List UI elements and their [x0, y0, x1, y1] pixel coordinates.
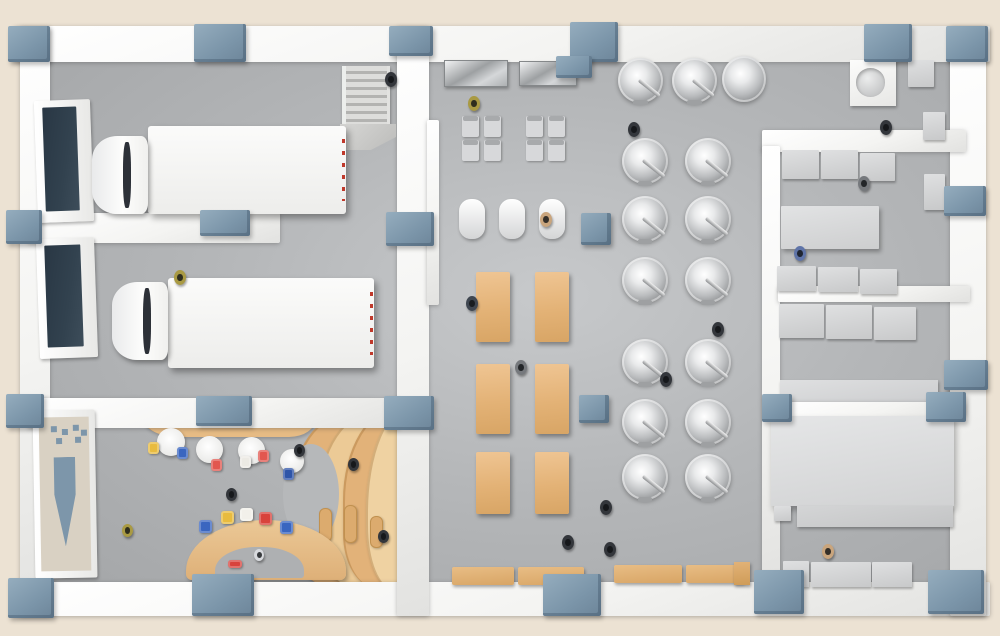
person — [468, 96, 480, 111]
fermentation-tank — [622, 399, 668, 445]
fermentation-tank — [685, 339, 731, 385]
person — [122, 524, 133, 537]
classroom-chair — [462, 116, 479, 137]
storage-bench — [872, 562, 912, 587]
storage-box — [923, 112, 945, 140]
person — [294, 444, 305, 457]
kids-chair — [240, 456, 251, 468]
standing-table — [499, 199, 525, 239]
person — [604, 542, 616, 557]
brew-tank — [618, 58, 663, 103]
classroom-chair — [548, 140, 565, 161]
brew-tank — [672, 58, 717, 103]
column-bracket — [754, 570, 804, 614]
classroom-chair — [462, 140, 479, 161]
column-bracket — [944, 186, 986, 216]
fermentation-tank — [685, 138, 731, 184]
kitchen-counter — [780, 380, 938, 404]
truck-cab — [112, 282, 168, 360]
wood-table — [476, 364, 510, 434]
person — [858, 176, 870, 191]
person — [348, 458, 359, 471]
column-block — [581, 213, 611, 245]
play-mat — [228, 560, 242, 568]
kids-chair — [148, 442, 159, 454]
wall-cabinet — [924, 174, 945, 210]
person — [174, 270, 186, 285]
storage-box — [908, 60, 934, 87]
person — [254, 549, 264, 561]
lab-cabinet — [821, 150, 858, 179]
column-bracket — [762, 394, 792, 422]
truck-cab — [92, 136, 148, 214]
column-bracket — [194, 24, 246, 62]
person — [628, 122, 640, 137]
person — [378, 530, 389, 543]
wall-center — [397, 26, 429, 616]
column-bracket — [928, 570, 984, 614]
storage-bench — [811, 562, 871, 587]
kids-chair — [283, 468, 294, 480]
person — [794, 246, 806, 261]
classroom-chair — [484, 140, 501, 161]
column-bracket — [389, 26, 433, 56]
lab-cabinet — [777, 266, 816, 291]
fermentation-tank — [685, 454, 731, 500]
column-bracket — [200, 210, 250, 236]
column-bracket — [946, 26, 988, 62]
wall-top — [14, 26, 990, 62]
person — [712, 322, 724, 337]
column-bracket — [8, 26, 50, 62]
cold-room-step — [774, 506, 791, 521]
kids-chair — [211, 459, 222, 471]
wall-right — [950, 26, 986, 616]
column-bracket — [6, 394, 44, 428]
truck-trailer — [168, 278, 374, 368]
person — [600, 500, 612, 515]
classroom-chair — [526, 116, 543, 137]
lab-cabinet — [860, 269, 897, 294]
fermentation-tank — [622, 138, 668, 184]
arch-stool — [240, 508, 253, 521]
steel-counter — [444, 60, 508, 87]
column-bracket — [8, 578, 54, 618]
column-bracket — [386, 212, 434, 246]
column-bracket — [6, 210, 42, 244]
fermentation-tank — [685, 399, 731, 445]
column-block — [579, 395, 609, 423]
fermentation-tank — [685, 257, 731, 303]
wall-bench — [452, 567, 514, 585]
kids-chair — [177, 447, 188, 459]
wood-crate — [734, 562, 750, 585]
mill-machine — [850, 60, 896, 106]
fermentation-tank — [622, 454, 668, 500]
person — [660, 372, 672, 387]
person — [562, 535, 574, 550]
person — [466, 296, 478, 311]
column-bracket — [196, 396, 252, 426]
lab-island — [781, 206, 879, 249]
fermentation-tank — [685, 196, 731, 242]
wood-table — [535, 272, 569, 342]
column-bracket — [926, 392, 966, 422]
arch-stool — [199, 520, 212, 533]
kitchen-cabinet — [779, 304, 824, 338]
wood-table — [476, 452, 510, 514]
column-bracket — [192, 574, 254, 616]
wall-bottom — [14, 582, 990, 616]
person — [822, 544, 834, 559]
staircase — [342, 66, 390, 124]
kitchen-cabinet — [826, 305, 872, 339]
cold-room — [771, 416, 954, 506]
floorplan-canvas — [0, 0, 1000, 636]
dock-door — [44, 244, 84, 347]
kids-chair — [258, 450, 269, 462]
truck-trailer — [148, 126, 346, 214]
lab-cabinet — [818, 267, 858, 292]
fermentation-tank — [622, 257, 668, 303]
kitchen-cabinet — [874, 307, 916, 340]
arch-stool — [280, 521, 293, 534]
column-bracket — [944, 360, 988, 390]
arch-stool — [221, 511, 234, 524]
classroom-chair — [484, 116, 501, 137]
fermentation-tank — [622, 196, 668, 242]
person — [880, 120, 892, 135]
column-bracket — [384, 396, 434, 430]
wood-table — [535, 452, 569, 514]
kids-wall-mural — [39, 417, 92, 572]
wall-bench — [614, 565, 682, 583]
person — [540, 212, 552, 227]
classroom-chair — [548, 116, 565, 137]
amphitheater-step — [344, 505, 357, 543]
person — [385, 72, 397, 87]
person — [515, 360, 527, 375]
column-bracket — [864, 24, 912, 62]
arch-stool — [259, 512, 272, 525]
person — [226, 488, 237, 501]
lab-cabinet — [782, 150, 819, 179]
standing-table — [459, 199, 485, 239]
wood-table — [476, 272, 510, 342]
holding-vessel — [722, 56, 766, 102]
dock-door — [42, 106, 80, 211]
column-bracket — [556, 56, 592, 78]
classroom-chair — [526, 140, 543, 161]
cold-room-ledge — [797, 506, 953, 527]
column-bracket — [543, 574, 601, 616]
wood-table — [535, 364, 569, 434]
